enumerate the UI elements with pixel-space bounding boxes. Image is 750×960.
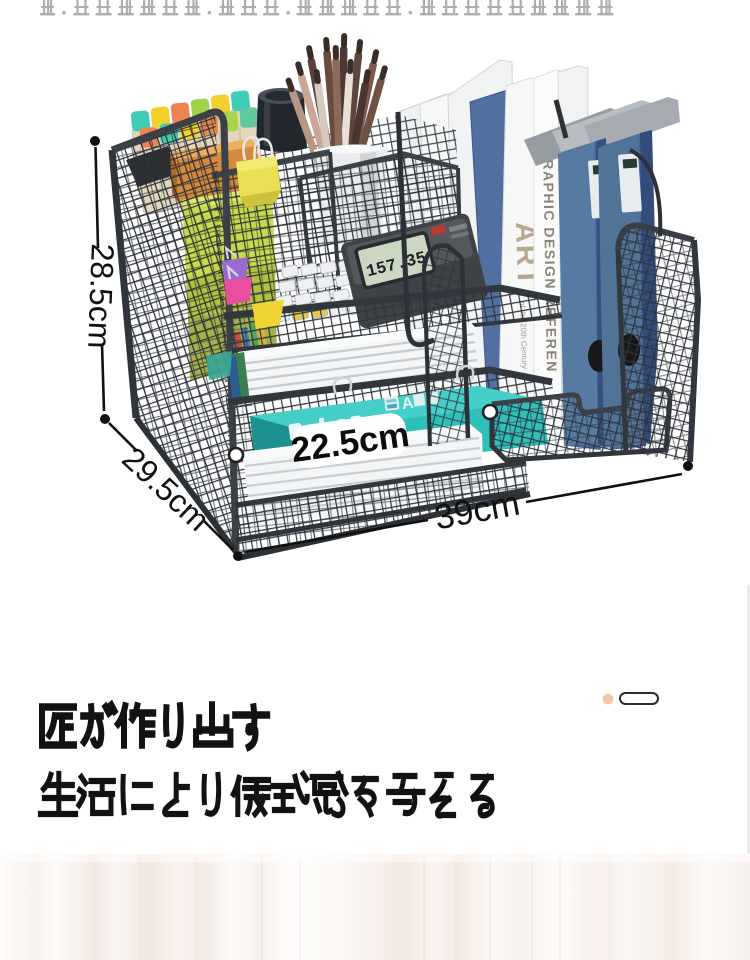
svg-text:28.5cm: 28.5cm — [81, 243, 121, 349]
